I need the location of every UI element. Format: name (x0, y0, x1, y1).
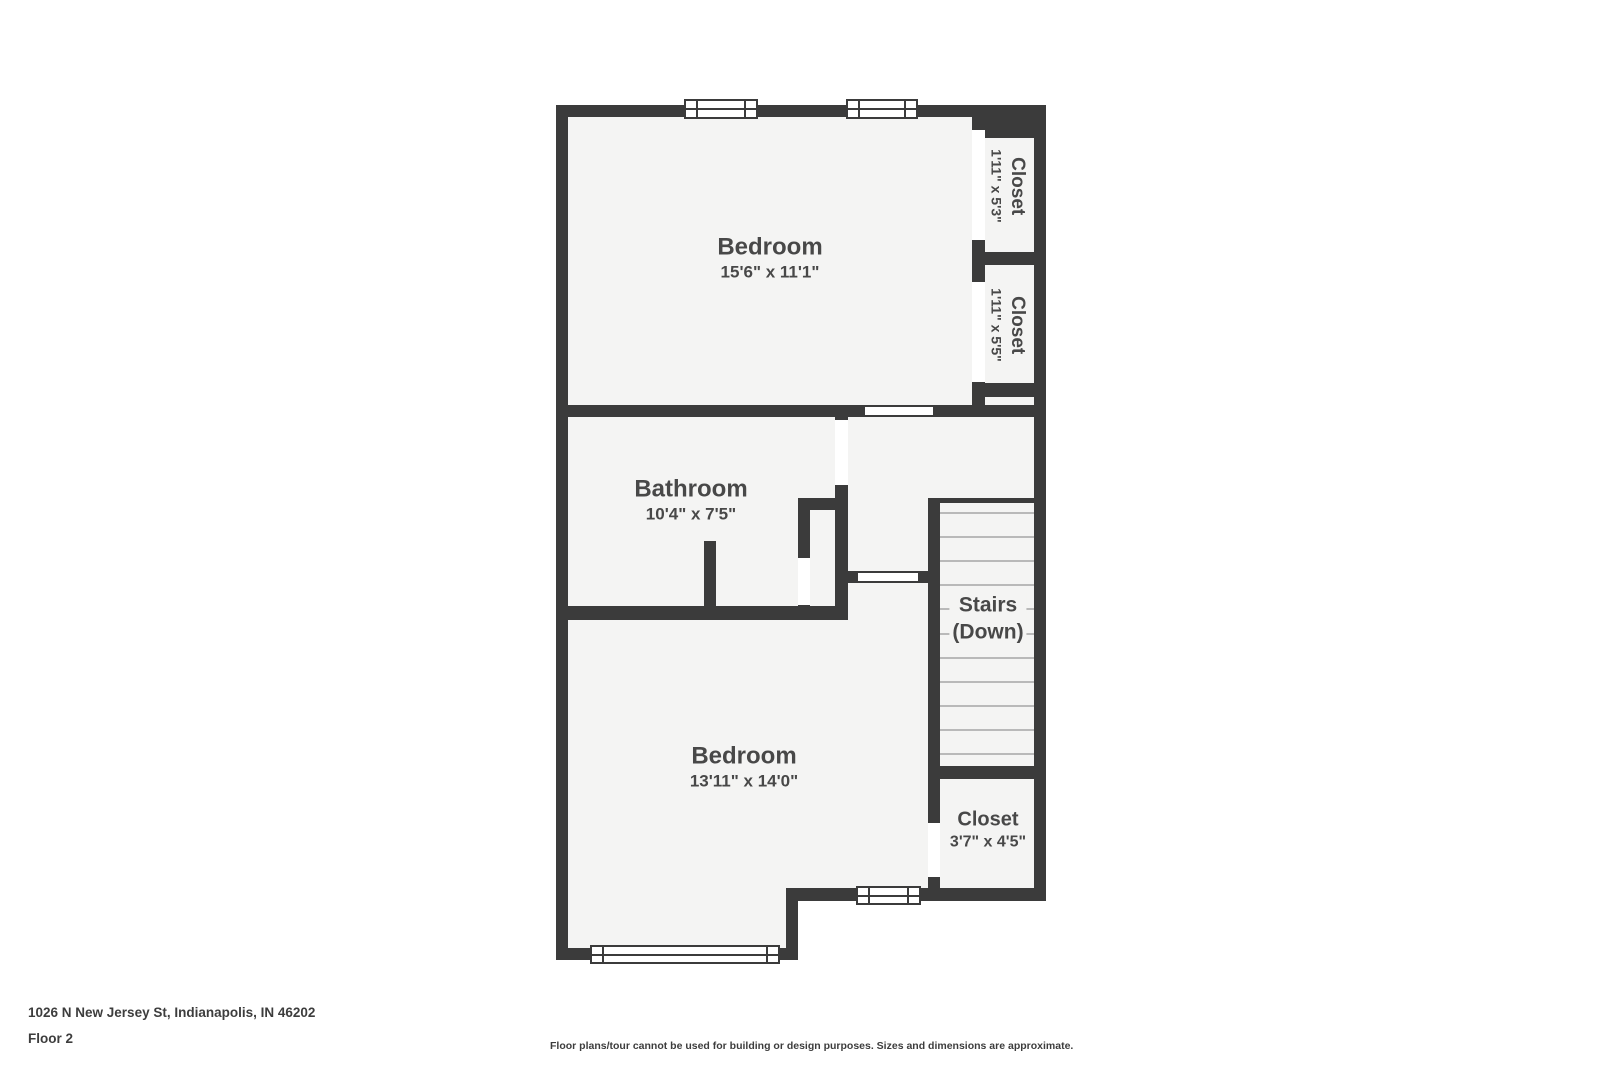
room-name: Bedroom (717, 234, 822, 262)
door-opening-alcove (798, 558, 810, 605)
wall-exterior-left (556, 105, 568, 960)
floor-label: Floor 2 (28, 1031, 73, 1046)
room-name: Closet (1005, 149, 1028, 223)
room-dimensions: 13'11" x 14'0" (690, 770, 798, 793)
room-name: Bedroom (690, 743, 798, 771)
wall-stairs-top-edge (940, 498, 1034, 503)
room-dimensions: 1'11" x 5'3" (986, 149, 1006, 223)
wall-exterior-right (1034, 105, 1046, 901)
door-opening-bedroom-top (865, 407, 933, 415)
room-name-direction: (Down) (949, 619, 1026, 646)
stair-tread (940, 753, 1034, 755)
window-step-wall (856, 886, 921, 905)
room-name: Closet (950, 809, 1026, 832)
room-label-bathroom: Bathroom 10'4" x 7'5" (634, 476, 747, 527)
wall-closet-divider (972, 252, 1046, 265)
door-opening-closet-mid (972, 282, 985, 382)
stair-tread (940, 536, 1034, 538)
room-dimensions: 10'4" x 7'5" (634, 503, 747, 526)
room-name: Closet (1005, 288, 1028, 362)
stair-tread (940, 681, 1034, 683)
stair-tread (940, 584, 1034, 586)
wall-stairs-left (928, 498, 940, 779)
room-label-bedroom-top: Bedroom 15'6" x 11'1" (717, 234, 822, 285)
property-address: 1026 N New Jersey St, Indianapolis, IN 4… (28, 1005, 315, 1020)
room-label-stairs: Stairs (Down) (949, 592, 1026, 647)
room-label-bedroom-bottom: Bedroom 13'11" x 14'0" (690, 743, 798, 794)
window-pane-line (858, 895, 919, 897)
stair-tread (940, 729, 1034, 731)
stair-tread (940, 560, 1034, 562)
disclaimer-text: Floor plans/tour cannot be used for buil… (550, 1040, 1073, 1052)
stair-tread (940, 512, 1034, 514)
wall-stairs-bottom (928, 766, 1046, 779)
window-top-left (684, 99, 758, 119)
door-opening-closet-top (972, 130, 985, 240)
floorplan-canvas: Bedroom 15'6" x 11'1" Closet 1'11" x 5'3… (0, 0, 1600, 1067)
window-bottom-bedroom (590, 945, 780, 964)
wall-closet-top-header (985, 117, 1046, 138)
stair-tread (940, 657, 1034, 659)
room-dimensions: 15'6" x 11'1" (717, 261, 822, 284)
stair-tread (940, 705, 1034, 707)
window-pane-line (592, 954, 778, 956)
door-opening-bathroom (835, 420, 848, 485)
door-opening-bedroom-bottom (858, 573, 918, 581)
room-label-closet-top: Closet 1'11" x 5'3" (986, 149, 1028, 223)
window-top-right (846, 99, 918, 119)
wall-bathroom-stub (704, 541, 716, 620)
room-dimensions: 3'7" x 4'5" (950, 832, 1026, 854)
room-name: Bathroom (634, 476, 747, 504)
room-name: Stairs (949, 592, 1026, 619)
window-pane-line (848, 108, 916, 110)
wall-closet-mid-bottom (985, 383, 1046, 397)
door-opening-closet-bottom (928, 823, 940, 877)
window-pane-line (686, 108, 756, 110)
room-label-closet-bottom: Closet 3'7" x 4'5" (950, 809, 1026, 854)
room-dimensions: 1'11" x 5'5" (986, 288, 1006, 362)
room-label-closet-mid: Closet 1'11" x 5'5" (986, 288, 1028, 362)
